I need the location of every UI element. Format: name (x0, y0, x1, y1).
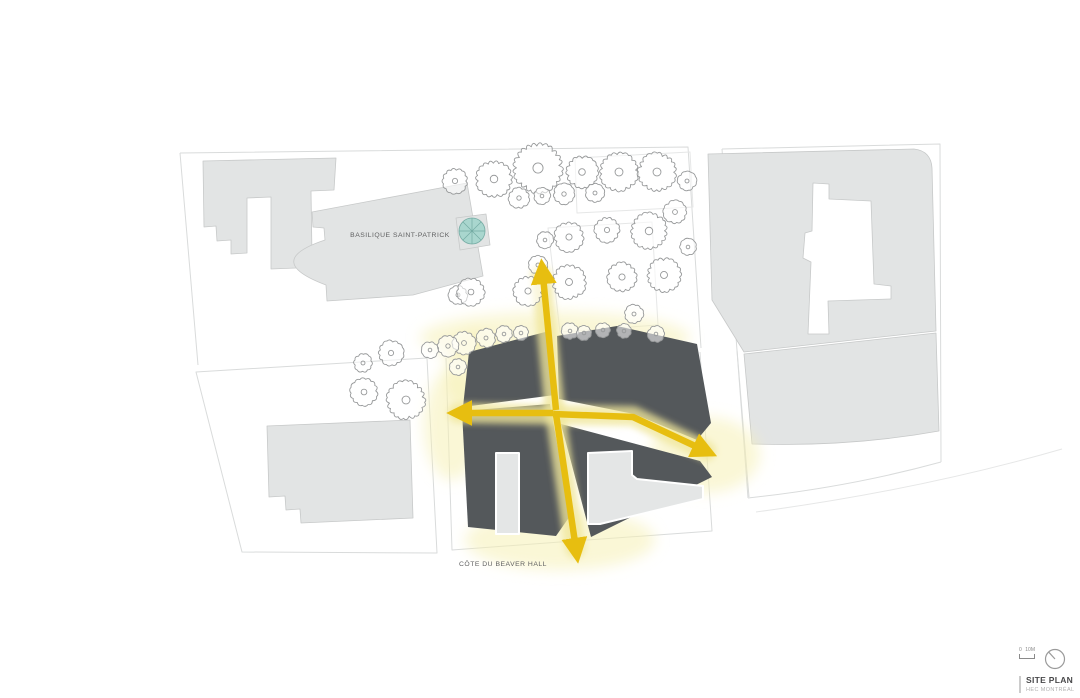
tree-icon (513, 143, 563, 194)
tree-icon (625, 304, 644, 323)
neighbor-building-southwest (267, 420, 413, 523)
tree-icon (680, 238, 697, 255)
tree-icon (534, 187, 551, 204)
scale-zero-label: 0 (1019, 648, 1022, 653)
sheet-title: SITE PLAN (1026, 676, 1075, 685)
tree-icon (594, 217, 620, 243)
basilique-saint-patrick-building (294, 183, 483, 301)
tree-icon (631, 212, 667, 250)
tree-icon (552, 265, 586, 300)
tree-icon (354, 354, 373, 373)
tree-icon (421, 342, 438, 359)
tree-icon (513, 276, 543, 306)
tree-icon (647, 258, 682, 293)
site-plan-drawing (0, 0, 1080, 698)
tree-icon (637, 152, 676, 191)
title-block: 0 10M SITE PLAN HEC MONTRÉAL (1019, 648, 1079, 693)
tree-icon (554, 222, 584, 252)
tree-icon (553, 183, 574, 205)
tree-icon (586, 183, 605, 202)
scale-max-label: 10M (1025, 648, 1035, 653)
tree-icon (350, 378, 378, 407)
basilica-label: BASILIQUE SAINT-PATRICK (330, 232, 470, 239)
project-name: HEC MONTRÉAL (1026, 687, 1075, 693)
tree-icon (663, 200, 687, 224)
light-volume-tower (496, 453, 519, 534)
tree-icon (378, 340, 404, 366)
street-label: CÔTE DU BEAVER HALL (459, 561, 547, 568)
tree-icon (595, 323, 610, 338)
north-arrow-icon (1044, 648, 1066, 670)
tree-icon (476, 161, 513, 197)
tree-icon (537, 232, 554, 249)
tree-icon (561, 323, 578, 339)
scale-bar: 0 10M (1019, 648, 1035, 659)
tree-icon (677, 171, 697, 191)
basilica-dome-icon (459, 218, 485, 244)
site-plan-page: BASILIQUE SAINT-PATRICK CÔTE DU BEAVER H… (0, 0, 1080, 698)
tree-icon (607, 262, 637, 292)
neighbor-building-east-lower (744, 333, 939, 444)
tree-icon (386, 380, 426, 420)
tree-icon (600, 152, 639, 192)
tree-icon (508, 187, 530, 208)
scale-bracket (1019, 654, 1035, 659)
title-divider (1019, 676, 1021, 693)
tree-icon (616, 323, 631, 338)
